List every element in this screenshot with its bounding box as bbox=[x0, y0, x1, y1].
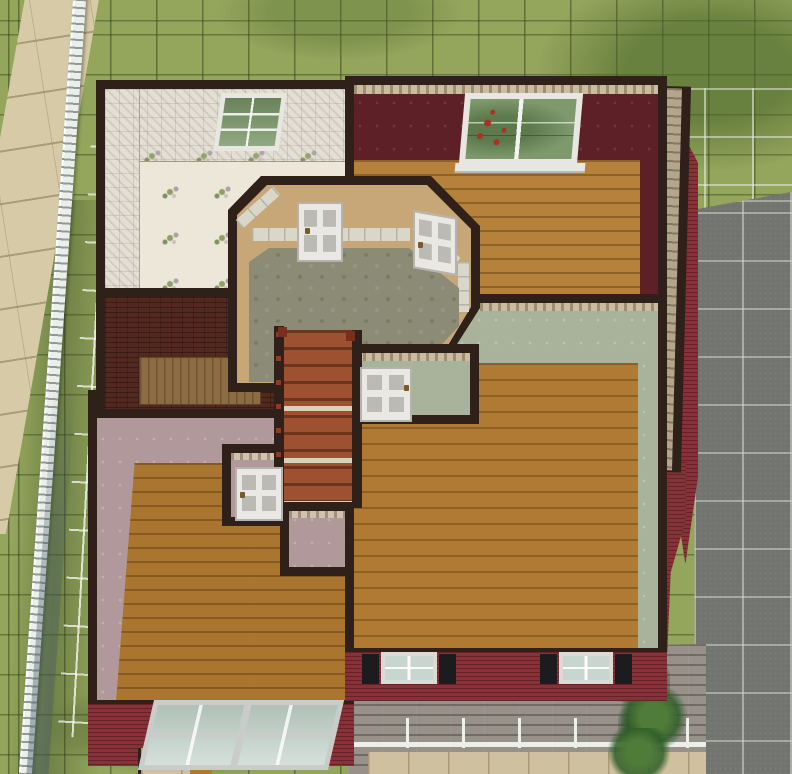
shutter bbox=[362, 654, 379, 684]
hallway-nw-door[interactable] bbox=[297, 202, 343, 262]
game-viewport[interactable] bbox=[0, 0, 792, 774]
bathroom-west-wall bbox=[105, 89, 140, 297]
hallway-wainscot-east bbox=[458, 262, 469, 312]
stairs-lower-wall-speckle bbox=[289, 511, 345, 567]
stairs-lower-wall bbox=[280, 502, 354, 576]
bedroom-north-window-sill bbox=[455, 163, 586, 173]
hallway-nw-door-knob bbox=[305, 228, 310, 234]
stair-newel-post bbox=[278, 327, 287, 337]
living-entry-border bbox=[354, 353, 470, 361]
stair-landing-strip bbox=[284, 458, 352, 463]
shrub[interactable] bbox=[602, 728, 676, 774]
grass-dark-patch-top-center bbox=[220, 0, 460, 60]
staircase[interactable] bbox=[284, 330, 352, 506]
shutter bbox=[540, 654, 557, 684]
living-window-west[interactable] bbox=[362, 652, 456, 686]
living-east-wall bbox=[638, 311, 658, 651]
window-glass bbox=[559, 652, 613, 684]
living-door-knob bbox=[404, 385, 409, 391]
bedroom-sw-window[interactable] bbox=[138, 700, 344, 770]
window-glass bbox=[381, 652, 437, 684]
hallway-east-door-knob bbox=[418, 242, 423, 248]
bedroom-sw-door-knob bbox=[240, 492, 245, 498]
stair-landing-strip bbox=[284, 406, 352, 411]
bathroom-window[interactable] bbox=[213, 93, 287, 151]
shutter bbox=[439, 654, 456, 684]
living-door[interactable] bbox=[360, 367, 412, 422]
shutter bbox=[615, 654, 632, 684]
living-window-east[interactable] bbox=[540, 652, 632, 686]
stair-newel-post bbox=[346, 331, 355, 341]
bedroom-north-window[interactable] bbox=[459, 93, 583, 165]
